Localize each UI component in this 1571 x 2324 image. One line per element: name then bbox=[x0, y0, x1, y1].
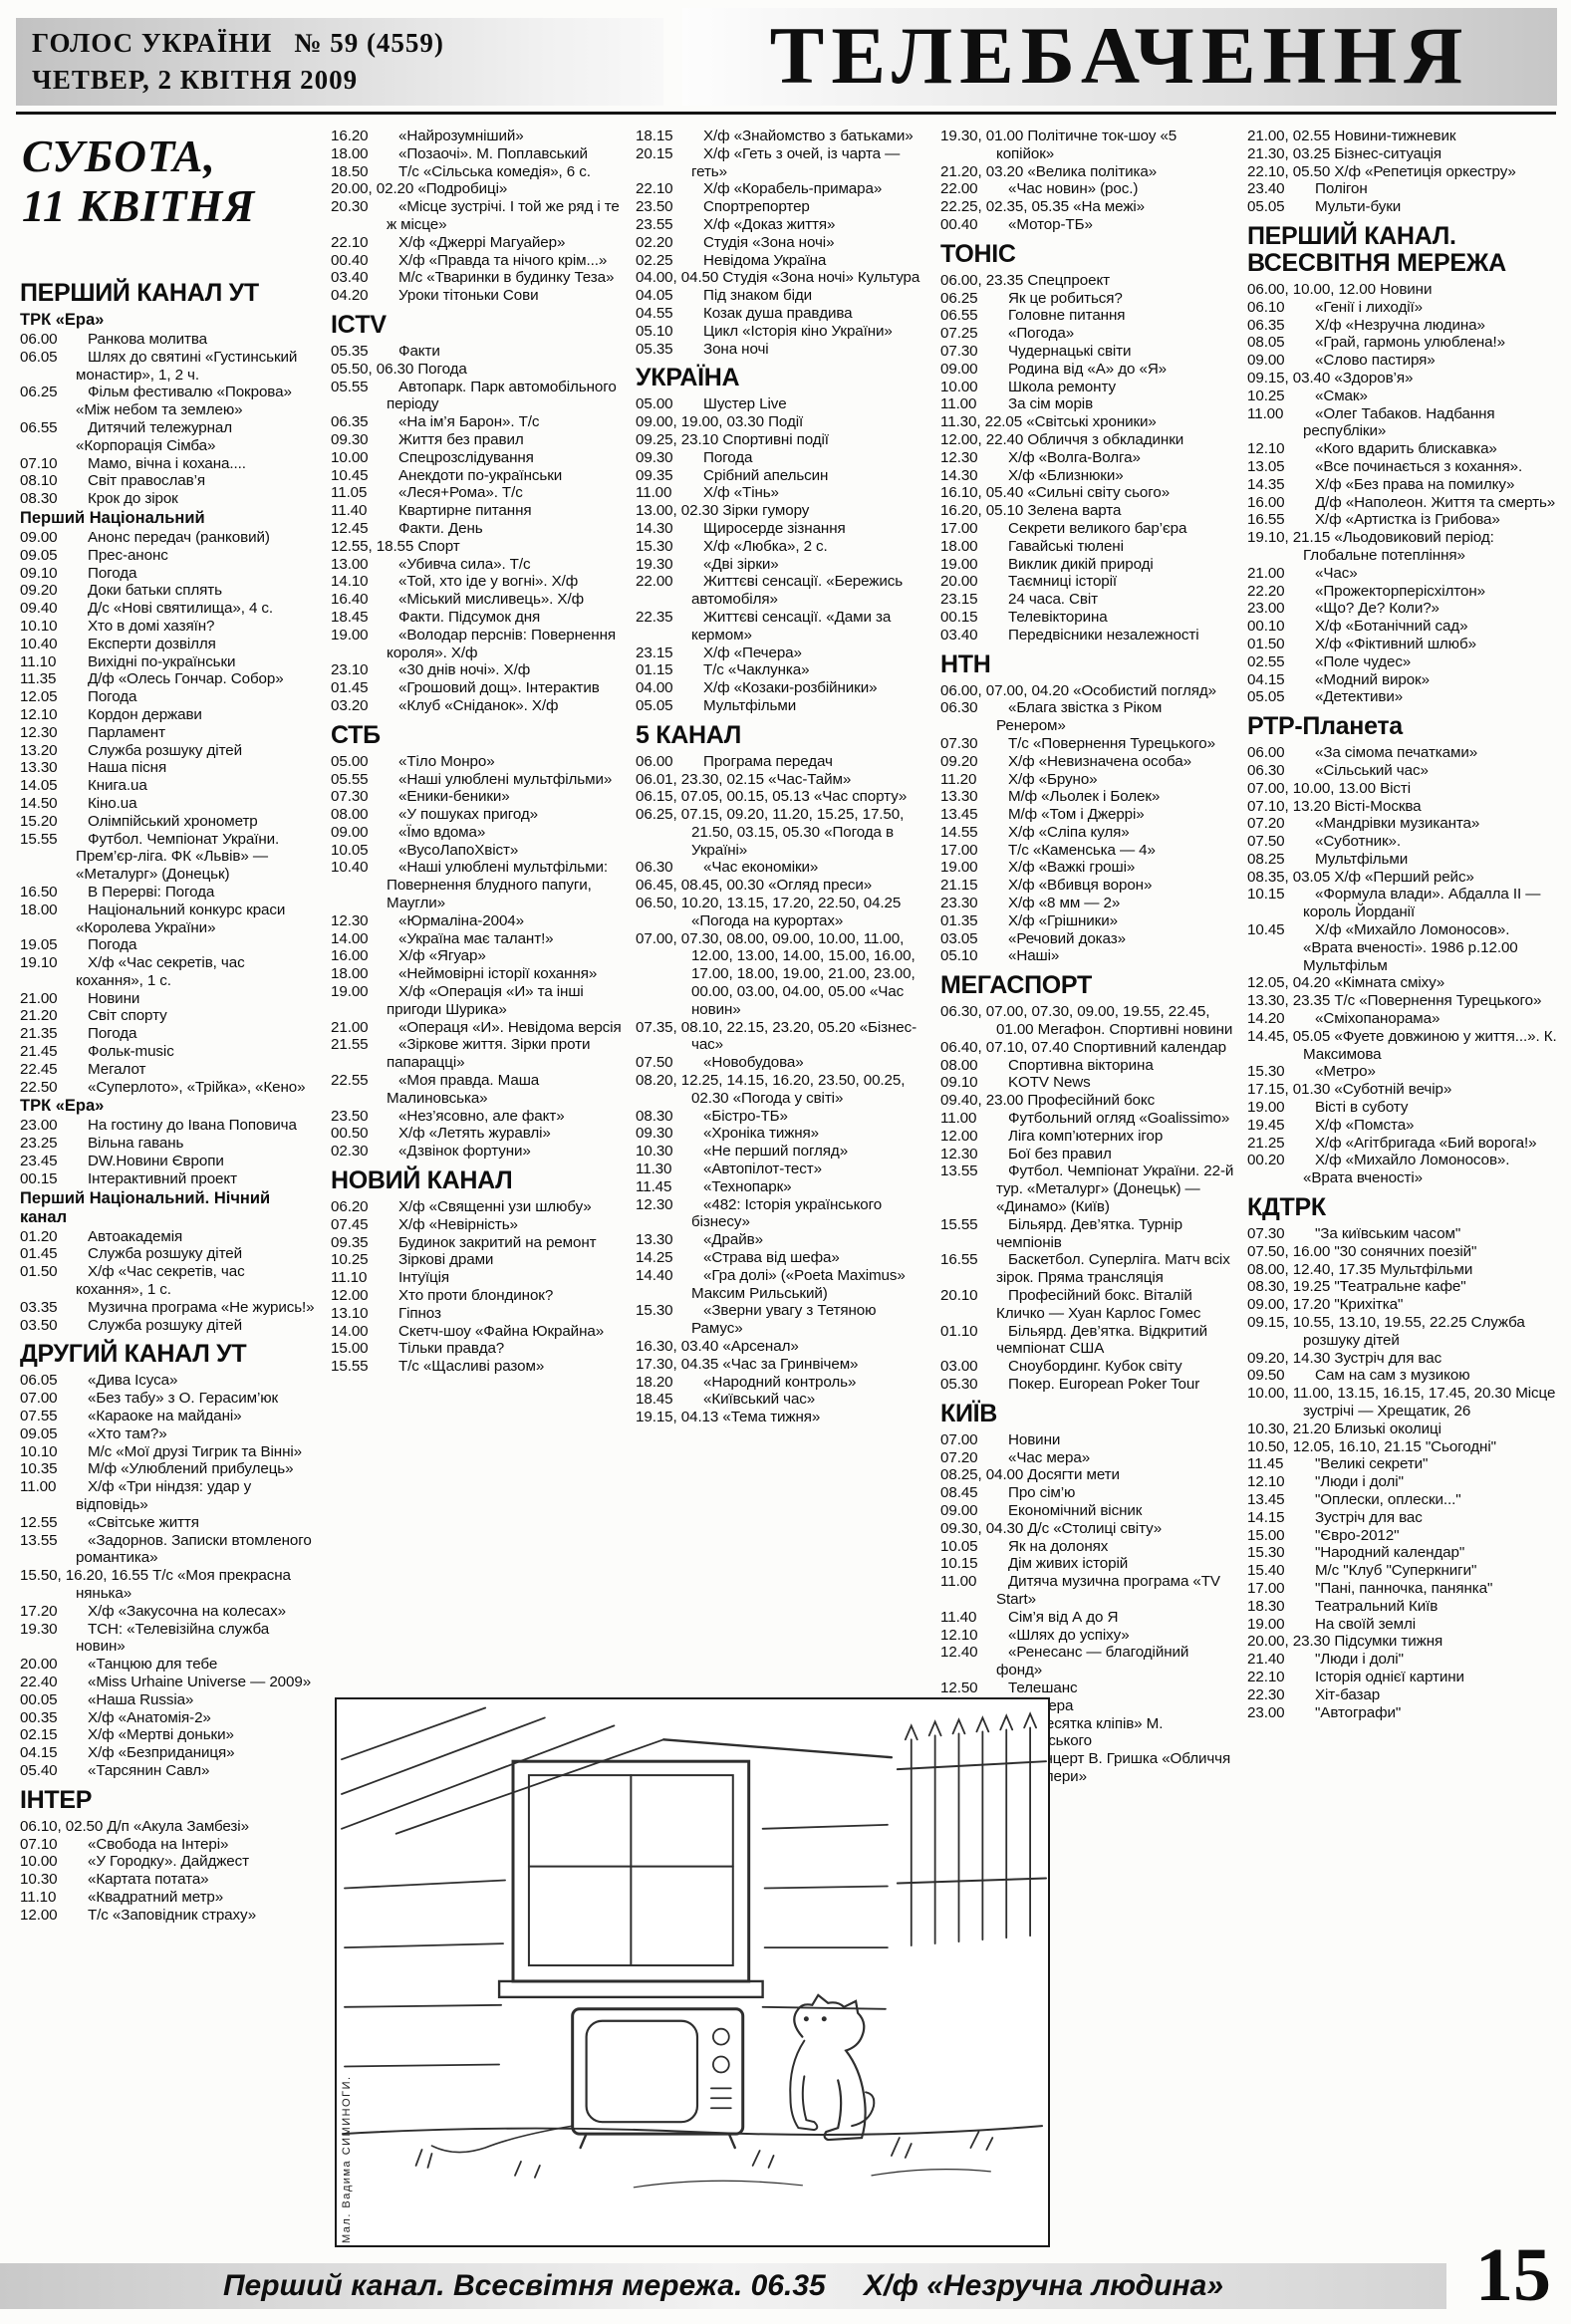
channel-subhead: ТРК «Ера» bbox=[20, 311, 315, 330]
listing-item: 10.05«ВусоЛапоХвіст» bbox=[331, 842, 626, 860]
listing-item: 09.30, 04.30 Д/с «Столиці світу» bbox=[940, 1520, 1235, 1538]
listing-title: Головне питання bbox=[1008, 307, 1125, 324]
listing-item: 06.00«За сімома печатками» bbox=[1247, 744, 1558, 762]
listing-time: 23.15 bbox=[636, 645, 703, 662]
listing-item: 22.00«Час новин» (рос.) bbox=[940, 180, 1235, 198]
listing-time: 00.20 bbox=[1247, 1152, 1315, 1169]
listing-item: 18.45«Київський час» bbox=[636, 1391, 930, 1409]
listing-item: 01.50Х/ф «Фіктивний шлюб» bbox=[1247, 636, 1558, 653]
listing-time: 10.00 bbox=[940, 379, 1008, 396]
listing-title: Х/ф «Артистка із Грибова» bbox=[1315, 511, 1500, 528]
listing-item: 15.30"Народний календар" bbox=[1247, 1544, 1558, 1562]
listing-item: 08.25Мультфільми bbox=[1247, 851, 1558, 869]
listing-item: 10.25Зіркові драми bbox=[331, 1251, 626, 1269]
listing-title: «Слово пастиря» bbox=[1315, 352, 1436, 369]
listing-title: «Караоке на майдані» bbox=[88, 1408, 242, 1424]
listing-title: Х/ф «Агітбригада «Бий ворога!» bbox=[1315, 1135, 1536, 1152]
listing-title: Олімпійський хронометр bbox=[88, 813, 258, 830]
listing-item: 08.30Крок до зірок bbox=[20, 490, 315, 508]
listing-time: 18.15 bbox=[636, 128, 703, 145]
channel-header: КДТРК bbox=[1247, 1194, 1558, 1221]
listing-time: 08.25 bbox=[1247, 851, 1315, 869]
listing-item: 06.00Програма передач bbox=[636, 753, 930, 771]
listing-time: 06.55 bbox=[20, 419, 88, 437]
listing-time: 12.10 bbox=[940, 1627, 1008, 1645]
listing-title: «Технопарк» bbox=[703, 1178, 792, 1195]
listing-title: Більярд. Дев’ятка. Турнір чемпіонів bbox=[996, 1216, 1182, 1251]
listing-time: 20.30 bbox=[331, 198, 398, 216]
listing-time: 14.05 bbox=[20, 777, 88, 795]
listing-item: 17.00Т/с «Каменська — 4» bbox=[940, 842, 1235, 860]
channel-subhead: Перший Національний. Нічний канал bbox=[20, 1189, 315, 1227]
listing-item: 03.40Передвісники незалежності bbox=[940, 627, 1235, 645]
listing-title: «Зіркове життя. Зірки проти папарацці» bbox=[387, 1036, 590, 1071]
listing-time: 16.40 bbox=[331, 591, 398, 609]
listing-title: Х/ф «Безприданиця» bbox=[88, 1744, 234, 1761]
listing-title: Т/с «Каменська — 4» bbox=[1008, 842, 1156, 859]
listing-title: Х/ф «Важкі гроші» bbox=[1008, 859, 1135, 876]
listing-title: Футбол. Чемпіонат України. 22-й тур. «Ме… bbox=[996, 1162, 1233, 1215]
listing-time: 23.55 bbox=[636, 216, 703, 234]
listing-item: 15.00Тільки правда? bbox=[331, 1340, 626, 1358]
listing-item: 11.30«Автопілот-тест» bbox=[636, 1161, 930, 1178]
listing-item: 07.10, 13.20 Вісті-Москва bbox=[1247, 798, 1558, 816]
listing-item: 14.40«Гра долі» («Poeta Maximus» Максим … bbox=[636, 1267, 930, 1303]
listing-time: 15.55 bbox=[331, 1358, 398, 1376]
listing-item: 22.55«Моя правда. Маша Малиновська» bbox=[331, 1072, 626, 1108]
listing-title: DW.Новини Європи bbox=[88, 1153, 224, 1169]
listing-item: 14.25«Страва від шефа» bbox=[636, 1249, 930, 1267]
listing-title: Х/ф «Час секретів, час кохання», 1 с. bbox=[76, 954, 245, 989]
listing-item: 07.30«Еники-беники» bbox=[331, 788, 626, 806]
listing-time: 10.10 bbox=[20, 618, 88, 636]
listing-title: Мамо, вічна і кохана.... bbox=[88, 455, 246, 472]
listing-title: Зустріч для вас bbox=[1315, 1509, 1423, 1526]
listing-time: 21.00 bbox=[1247, 565, 1315, 583]
listing-item: 06.45, 08.45, 00.30 «Огляд преси» bbox=[636, 877, 930, 895]
listing-item: 17.15, 01.30 «Суботній вечір» bbox=[1247, 1081, 1558, 1099]
channel-header: ІНТЕР bbox=[20, 1787, 315, 1814]
listing-time: 09.50 bbox=[1247, 1367, 1315, 1385]
listing-item: 16.20«Найрозумніший» bbox=[331, 128, 626, 145]
listing-item: 11.30, 22.05 «Світські хроники» bbox=[940, 413, 1235, 431]
listing-item: 07.50, 16.00 "30 сонячних поезій" bbox=[1247, 1243, 1558, 1261]
listing-title: М/с «Тваринки в будинку Теза» bbox=[398, 269, 614, 286]
footer-highlight-text: Перший канал. Всесвітня мережа. 06.35 Х/… bbox=[223, 2269, 1223, 2302]
listing-item: 18.00Гавайські тюлені bbox=[940, 538, 1235, 556]
channel-header: НОВИЙ КАНАЛ bbox=[331, 1167, 626, 1194]
listing-title: Х/ф «Невизначена особа» bbox=[1008, 753, 1191, 770]
listing-time: 10.40 bbox=[20, 636, 88, 653]
listing-title: Парламент bbox=[88, 724, 165, 741]
listing-item: 04.00Х/ф «Козаки-розбійники» bbox=[636, 679, 930, 697]
listing-time: 14.00 bbox=[331, 930, 398, 948]
listing-item: 18.50Т/с «Сільська комедія», 6 с. bbox=[331, 163, 626, 181]
illustration-caption: Мал. Вадима СИМИНОГИ. bbox=[341, 2075, 353, 2243]
listing-title: Життя без правил bbox=[398, 431, 524, 448]
listing-title: На гостину до Івана Поповича bbox=[88, 1117, 297, 1134]
listing-time: 07.20 bbox=[940, 1449, 1008, 1467]
listing-item: 00.05«Наша Russia» bbox=[20, 1691, 315, 1709]
listing-item: 14.15Зустріч для вас bbox=[1247, 1509, 1558, 1527]
listing-time: 09.10 bbox=[940, 1074, 1008, 1092]
listing-item: 07.20«Мандрівки музиканта» bbox=[1247, 815, 1558, 833]
listing-item: 09.30Життя без правил bbox=[331, 431, 626, 449]
channel-header: МЕГАСПОРТ bbox=[940, 972, 1235, 999]
listing-title: Х/ф «Джеррі Магуайер» bbox=[398, 234, 565, 251]
listing-time: 23.00 bbox=[20, 1117, 88, 1135]
listing-item: 04.15«Модний вирок» bbox=[1247, 671, 1558, 689]
listing-title: «У Городку». Дайджест bbox=[88, 1853, 249, 1870]
listing-title: «Мотор-ТБ» bbox=[1008, 216, 1093, 233]
listing-item: 00.50Х/ф «Летять журавлі» bbox=[331, 1125, 626, 1143]
listing-item: 22.45Мегалот bbox=[20, 1061, 315, 1079]
listing-title: Студія «Зона ночі» bbox=[703, 234, 834, 251]
listing-time: 12.10 bbox=[1247, 1473, 1315, 1491]
listing-time: 06.30 bbox=[940, 699, 1008, 717]
listing-item: 06.50, 10.20, 13.15, 17.20, 22.50, 04.25… bbox=[636, 895, 930, 930]
listing-title: М/ф «Улюблений прибулець» bbox=[88, 1460, 293, 1477]
listing-time: 12.50 bbox=[940, 1679, 1008, 1697]
listing-item: 22.10Х/ф «Корабель-примара» bbox=[636, 180, 930, 198]
listing-item: 16.40«Міський мисливець». Х/ф bbox=[331, 591, 626, 609]
illustration: Мал. Вадима СИМИНОГИ. bbox=[335, 1697, 1050, 2247]
listing-time: 22.40 bbox=[20, 1674, 88, 1691]
listing-title: Гіпноз bbox=[398, 1305, 441, 1322]
page-title: ТЕЛЕБАЧЕННЯ bbox=[682, 8, 1557, 106]
listing-title: Доки батьки сплять bbox=[88, 582, 222, 599]
listing-title: Професійний бокс. Віталій Кличко — Хуан … bbox=[996, 1287, 1200, 1322]
listing-time: 09.35 bbox=[331, 1234, 398, 1252]
listing-time: 14.00 bbox=[331, 1323, 398, 1341]
listing-item: 09.20Х/ф «Невизначена особа» bbox=[940, 753, 1235, 771]
listing-title: «Наші улюблені мультфільми: Повернення б… bbox=[387, 859, 608, 911]
listing-time: 06.10 bbox=[1247, 299, 1315, 317]
listing-time: 06.35 bbox=[331, 413, 398, 431]
listing-time: 11.00 bbox=[940, 395, 1008, 413]
listing-title: «Сільський час» bbox=[1315, 762, 1429, 779]
listing-time: 18.00 bbox=[331, 145, 398, 163]
listing-title: «Юрмаліна-2004» bbox=[398, 912, 524, 929]
listing-title: «Володар перснів: Повернення короля». Х/… bbox=[387, 627, 616, 661]
listing-item: 01.50Х/ф «Час секретів, час кохання», 1 … bbox=[20, 1263, 315, 1299]
listing-item: 19.30«Дві зірки» bbox=[636, 556, 930, 574]
listing-title: «Свобода на Інтері» bbox=[88, 1836, 228, 1853]
listing-time: 01.35 bbox=[940, 912, 1008, 930]
listing-item: 22.30Хіт-базар bbox=[1247, 1686, 1558, 1704]
listing-time: 05.05 bbox=[636, 697, 703, 715]
listing-title: «Картата потата» bbox=[88, 1871, 209, 1888]
listing-title: Х/ф «Тінь» bbox=[703, 484, 779, 501]
listing-time: 14.40 bbox=[636, 1267, 703, 1285]
listing-item: 14.50Кіно.ua bbox=[20, 795, 315, 813]
listing-time: 01.15 bbox=[636, 661, 703, 679]
listing-item: 15.55Футбол. Чемпіонат України. Прем’єр-… bbox=[20, 831, 315, 884]
listing-item: 14.55Х/ф «Сліпа куля» bbox=[940, 824, 1235, 842]
listing-time: 19.45 bbox=[1247, 1117, 1315, 1135]
listing-title: «У пошуках пригод» bbox=[398, 806, 538, 823]
listing-time: 05.10 bbox=[940, 947, 1008, 965]
listing-time: 07.00 bbox=[20, 1390, 88, 1408]
listing-title: «Наші улюблені мультфільми» bbox=[398, 771, 612, 788]
listing-time: 12.40 bbox=[940, 1644, 1008, 1662]
listing-title: Виклик дикій природі bbox=[1008, 556, 1154, 573]
listing-time: 18.00 bbox=[20, 902, 88, 919]
listing-time: 11.45 bbox=[636, 1178, 703, 1196]
listing-title: Родина від «А» до «Я» bbox=[1008, 361, 1167, 378]
listing-time: 10.35 bbox=[20, 1460, 88, 1478]
listing-time: 12.30 bbox=[636, 1196, 703, 1214]
listing-item: 11.00Х/ф «Три ніндзя: удар у відповідь» bbox=[20, 1478, 315, 1514]
listing-item: 22.10Історія однієї картини bbox=[1247, 1669, 1558, 1686]
listing-time: 06.30 bbox=[1247, 762, 1315, 780]
listing-title: «За сімома печатками» bbox=[1315, 744, 1477, 761]
listing-time: 06.30 bbox=[636, 859, 703, 877]
listing-time: 14.30 bbox=[940, 467, 1008, 485]
listing-title: Скетч-шоу «Файна Юкрайна» bbox=[398, 1323, 604, 1340]
listing-time: 13.30 bbox=[20, 759, 88, 777]
listing-time: 22.50 bbox=[20, 1079, 88, 1097]
listing-item: 06.25, 07.15, 09.20, 11.20, 15.25, 17.50… bbox=[636, 806, 930, 859]
listing-title: Мегалот bbox=[88, 1061, 145, 1078]
listing-time: 11.30 bbox=[636, 1161, 703, 1178]
listing-title: Гавайські тюлені bbox=[1008, 538, 1124, 555]
listing-title: Погода bbox=[88, 565, 136, 582]
listing-item: 11.00Х/ф «Тінь» bbox=[636, 484, 930, 502]
listing-title: Більярд. Дев’ятка. Відкритий чемпіонат С… bbox=[996, 1323, 1207, 1358]
listing-time: 01.45 bbox=[20, 1245, 88, 1263]
listing-column-4: 19.30, 01.00 Політичне ток-шоу «5 копійо… bbox=[940, 128, 1235, 1804]
listing-item: 12.10Кордон держави bbox=[20, 706, 315, 724]
listing-title: «Сміхопанорама» bbox=[1315, 1010, 1440, 1027]
listing-item: 08.00, 12.40, 17.35 Мультфільми bbox=[1247, 1261, 1558, 1279]
listing-time: 08.30 bbox=[20, 490, 88, 508]
listing-title: Про сім’ю bbox=[1008, 1484, 1075, 1501]
listing-item: 06.00Ранкова молитва bbox=[20, 331, 315, 349]
listing-item: 21.00, 02.55 Новини-тижневик bbox=[1247, 128, 1558, 145]
listing-title: ТСН: «Телевізійна служба новин» bbox=[76, 1621, 269, 1656]
listing-title: «Дві зірки» bbox=[703, 556, 779, 573]
listing-time: 11.20 bbox=[940, 771, 1008, 789]
listing-title: «Місце зустрічі. І той же ряд і те ж міс… bbox=[387, 198, 620, 233]
listing-item: 12.05Погода bbox=[20, 688, 315, 706]
listing-item: 09.15, 03.40 «Здоров’я» bbox=[1247, 370, 1558, 387]
listing-item: 02.55«Поле чудес» bbox=[1247, 653, 1558, 671]
paper-name: ГОЛОС УКРАЇНИ bbox=[32, 28, 272, 58]
listing-title: Автопарк. Парк автомобільного періоду bbox=[387, 379, 617, 413]
listing-time: 05.35 bbox=[636, 341, 703, 359]
listing-time: 01.50 bbox=[1247, 636, 1315, 653]
day-header: СУБОТА, 11 КВІТНЯ bbox=[22, 131, 255, 231]
listing-item: 12.55«Світське життя bbox=[20, 1514, 315, 1532]
listing-item: 03.40М/с «Тваринки в будинку Теза» bbox=[331, 269, 626, 287]
listing-item: 15.50, 16.20, 16.55 Т/с «Моя прекрасна н… bbox=[20, 1567, 315, 1603]
listing-item: 20.15Х/ф «Геть з очей, із чарта — геть» bbox=[636, 145, 930, 181]
listing-time: 02.55 bbox=[1247, 653, 1315, 671]
listing-item: 08.35, 03.05 Х/ф «Перший рейс» bbox=[1247, 869, 1558, 887]
listing-item: 06.05Шлях до святині «Густинський монаст… bbox=[20, 349, 315, 385]
listing-time: 23.00 bbox=[1247, 1704, 1315, 1722]
listing-title: Вихідні по-українськи bbox=[88, 653, 235, 670]
day-line1: СУБОТА, bbox=[22, 131, 255, 181]
listing-item: 18.00«Неймовірні історії кохання» bbox=[331, 965, 626, 983]
listing-item: 12.55, 18.55 Спорт bbox=[331, 538, 626, 556]
listing-time: 19.00 bbox=[1247, 1099, 1315, 1117]
listing-item: 23.45DW.Новини Європи bbox=[20, 1153, 315, 1170]
listing-item: 11.00«Олег Табаков. Надбання республіки» bbox=[1247, 405, 1558, 441]
listing-item: 19.30ТСН: «Телевізійна служба новин» bbox=[20, 1621, 315, 1657]
listing-item: 06.30«Блага звістка з Ріком Ренером» bbox=[940, 699, 1235, 735]
listing-time: 04.55 bbox=[636, 305, 703, 323]
channel-header: УКРАЇНА bbox=[636, 365, 930, 391]
listing-title: Х/ф «Фіктивний шлюб» bbox=[1315, 636, 1476, 652]
listing-time: 10.25 bbox=[331, 1251, 398, 1269]
channel-header: 5 КАНАЛ bbox=[636, 722, 930, 749]
listing-time: 08.00 bbox=[331, 806, 398, 824]
listing-title: Х/ф «Летять журавлі» bbox=[398, 1125, 551, 1142]
listing-item: 12.10"Люди і долі" bbox=[1247, 1473, 1558, 1491]
listing-time: 10.25 bbox=[1247, 387, 1315, 405]
listing-title: М/ф «Том і Джеррі» bbox=[1008, 806, 1145, 823]
listing-title: «Бістро-ТБ» bbox=[703, 1108, 788, 1125]
listing-title: Т/с «Заповідник страху» bbox=[88, 1907, 256, 1924]
listing-title: «Смак» bbox=[1315, 387, 1368, 404]
listing-time: 21.35 bbox=[20, 1025, 88, 1043]
listing-column-5: 21.00, 02.55 Новини-тижневик21.30, 03.25… bbox=[1247, 128, 1558, 1721]
listing-time: 04.15 bbox=[20, 1744, 88, 1762]
listing-item: 07.20«Час мера» bbox=[940, 1449, 1235, 1467]
listing-time: 18.00 bbox=[940, 538, 1008, 556]
listing-time: 00.35 bbox=[20, 1709, 88, 1727]
channel-header: ДРУГИЙ КАНАЛ УТ bbox=[20, 1341, 315, 1368]
listing-title: Світ спорту bbox=[88, 1007, 167, 1024]
listing-item: 06.30, 07.00, 07.30, 09.00, 19.55, 22.45… bbox=[940, 1003, 1235, 1039]
listing-title: Х/ф «Волга-Волга» bbox=[1008, 449, 1141, 466]
listing-item: 10.00Спецрозслідування bbox=[331, 449, 626, 467]
listing-title: Квартирне питання bbox=[398, 502, 531, 519]
listing-item: 03.35Музична програма «Не журись!» bbox=[20, 1299, 315, 1317]
listing-item: 04.20Уроки тітоньки Сови bbox=[331, 287, 626, 305]
listing-time: 21.25 bbox=[1247, 1135, 1315, 1153]
listing-item: 06.40, 07.10, 07.40 Спортивний календар bbox=[940, 1039, 1235, 1057]
listing-title: Х/ф «Закусочна на колесах» bbox=[88, 1603, 286, 1620]
listing-time: 15.20 bbox=[20, 813, 88, 831]
listing-time: 18.45 bbox=[331, 609, 398, 627]
listing-item: 21.00Новини bbox=[20, 990, 315, 1008]
listing-item: 04.05Під знаком біди bbox=[636, 287, 930, 305]
listing-title: Зона ночі bbox=[703, 341, 769, 358]
listing-time: 15.30 bbox=[1247, 1544, 1315, 1562]
listing-item: 07.45Х/ф «Невірність» bbox=[331, 1216, 626, 1234]
listing-title: «Поле чудес» bbox=[1315, 653, 1411, 670]
listing-title: Анонс передач (ранковий) bbox=[88, 529, 270, 546]
listing-item: 07.35, 08.10, 22.15, 23.20, 05.20 «Бізне… bbox=[636, 1019, 930, 1055]
listing-item: 07.30Т/с «Повернення Турецького» bbox=[940, 735, 1235, 753]
listing-time: 09.20 bbox=[940, 753, 1008, 771]
listing-time: 18.50 bbox=[331, 163, 398, 181]
listing-time: 00.40 bbox=[331, 252, 398, 270]
listing-item: 10.45Х/ф «Михайло Ломоносов». «Врата вче… bbox=[1247, 921, 1558, 974]
listing-item: 05.55«Наші улюблені мультфільми» bbox=[331, 771, 626, 789]
listing-time: 02.25 bbox=[636, 252, 703, 270]
listing-item: 10.30«Не перший погляд» bbox=[636, 1143, 930, 1161]
listing-title: Зіркові драми bbox=[398, 1251, 493, 1268]
listing-item: 09.35Будинок закритий на ремонт bbox=[331, 1234, 626, 1252]
listing-title: Таємниці історії bbox=[1008, 573, 1117, 590]
listing-time: 08.10 bbox=[20, 472, 88, 490]
listing-title: Історія однієї картини bbox=[1315, 1669, 1464, 1685]
listing-title: Х/ф «Знайомство з батьками» bbox=[703, 128, 914, 144]
listing-time: 19.30 bbox=[20, 1621, 88, 1639]
listing-title: «Драйв» bbox=[703, 1231, 763, 1248]
listing-time: 12.00 bbox=[940, 1128, 1008, 1146]
listing-item: 11.35Д/ф «Олесь Гончар. Собор» bbox=[20, 670, 315, 688]
listing-title: «Нез’ясовно, але факт» bbox=[398, 1108, 565, 1125]
listing-item: 13.45М/ф «Том і Джеррі» bbox=[940, 806, 1235, 824]
listing-item: 20.10Професійний бокс. Віталій Кличко — … bbox=[940, 1287, 1235, 1323]
listing-item: 00.40«Мотор-ТБ» bbox=[940, 216, 1235, 234]
listing-title: «Україна має талант!» bbox=[398, 930, 554, 947]
listing-item: 09.00, 17.20 "Крихітка" bbox=[1247, 1296, 1558, 1314]
listing-title: Новини bbox=[88, 990, 139, 1007]
listing-title: «Мандрівки музиканта» bbox=[1315, 815, 1479, 832]
listing-item: 21.15Х/ф «Вбивця ворон» bbox=[940, 877, 1235, 895]
listing-item: 14.05Книга.ua bbox=[20, 777, 315, 795]
listing-time: 13.30 bbox=[636, 1231, 703, 1249]
listing-item: 23.10«30 днів ночі». Х/ф bbox=[331, 661, 626, 679]
listing-item: 10.10Хто в домі хазяїн? bbox=[20, 618, 315, 636]
listing-item: 06.55Дитячий тележурнал «Корпорація Сімб… bbox=[20, 419, 315, 455]
listing-title: Х/ф «Вбивця ворон» bbox=[1008, 877, 1152, 894]
listing-item: 18.20«Народний контроль» bbox=[636, 1374, 930, 1392]
listing-title: «Погода» bbox=[1008, 325, 1074, 342]
listing-item: 14.00«Україна має талант!» bbox=[331, 930, 626, 948]
listing-title: Дитячий тележурнал «Корпорація Сімба» bbox=[76, 419, 232, 454]
listing-time: 00.10 bbox=[1247, 618, 1315, 636]
listing-time: 22.35 bbox=[636, 609, 703, 627]
listing-time: 23.50 bbox=[331, 1108, 398, 1126]
listing-title: «Дива Ісуса» bbox=[88, 1372, 177, 1389]
channel-subhead: Перший Національний bbox=[20, 509, 315, 528]
listing-time: 22.30 bbox=[1247, 1686, 1315, 1704]
listing-item: 14.30Щиросерде зізнання bbox=[636, 520, 930, 538]
listing-time: 05.05 bbox=[1247, 198, 1315, 216]
listing-item: 22.00Життєві сенсації. «Бережись автомоб… bbox=[636, 573, 930, 609]
listing-title: «Гра долі» («Poeta Maximus» Максим Рильс… bbox=[691, 1267, 906, 1302]
listing-title: Х/ф «Незручна людина» bbox=[1315, 317, 1485, 334]
listing-title: Спортивна вікторина bbox=[1008, 1057, 1154, 1074]
listing-title: «Найрозумніший» bbox=[398, 128, 524, 144]
listing-item: 09.00Економічний вісник bbox=[940, 1502, 1235, 1520]
listing-time: 02.15 bbox=[20, 1726, 88, 1744]
listing-item: 12.30Х/ф «Волга-Волга» bbox=[940, 449, 1235, 467]
listing-title: Х/ф «8 мм — 2» bbox=[1008, 895, 1120, 911]
listing-time: 11.05 bbox=[331, 484, 398, 502]
listing-item: 10.00«У Городку». Дайджест bbox=[20, 1853, 315, 1871]
listing-item: 10.45Анекдоти по-українськи bbox=[331, 467, 626, 485]
listing-item: 13.55«Задорнов. Записки втомленого роман… bbox=[20, 1532, 315, 1568]
listing-item: 19.00Х/ф «Операція «И» та інші пригоди Ш… bbox=[331, 983, 626, 1019]
listing-title: Дім живих історій bbox=[1008, 1555, 1128, 1572]
listing-title: Т/с «Сільська комедія», 6 с. bbox=[398, 163, 591, 180]
listing-item: 19.45Х/ф «Помста» bbox=[1247, 1117, 1558, 1135]
listing-title: «Час економіки» bbox=[703, 859, 818, 876]
listing-title: Х/ф «Час секретів, час кохання», 1 с. bbox=[76, 1263, 245, 1298]
listing-item: 15.30«Зверни увагу з Тетяною Рамус» bbox=[636, 1302, 930, 1338]
listing-title: Служба розшуку дітей bbox=[88, 1245, 242, 1262]
listing-item: 00.20Х/ф «Михайло Ломоносов». «Врата вче… bbox=[1247, 1152, 1558, 1187]
listing-title: Життєві сенсації. «Бережись автомобіля» bbox=[691, 573, 903, 608]
